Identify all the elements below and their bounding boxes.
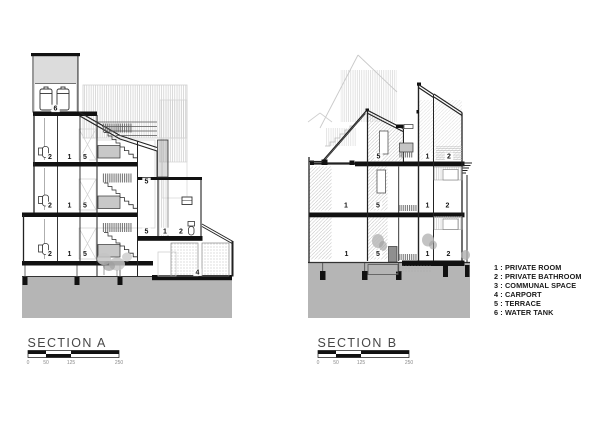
scalebar-a-tick-0: 0 xyxy=(27,360,30,366)
legend-item-water-tank: 6 : WATER TANK xyxy=(494,309,582,318)
toilet-icon xyxy=(188,222,195,236)
room-number-label: 1 xyxy=(345,251,349,258)
room-number-label: 1 xyxy=(68,203,72,210)
room-number-label: 2 xyxy=(48,203,52,210)
section-a-title: SECTION A xyxy=(28,336,107,350)
section-a-background xyxy=(79,85,187,259)
window-icon xyxy=(443,170,458,181)
room-number-label: 5 xyxy=(83,203,87,210)
room-number-label: 2 xyxy=(447,251,451,258)
scalebar-b-tick-125: 125 xyxy=(357,360,366,366)
terrace-deck xyxy=(400,143,414,152)
section-b-title: SECTION B xyxy=(318,336,398,350)
room-number-label: 5 xyxy=(83,251,87,258)
section-a-drawing: 621521521555124 xyxy=(22,53,233,318)
sections-drawing: 621521521555124 xyxy=(0,0,600,424)
room-number-label: 2 xyxy=(179,229,183,236)
door-panel xyxy=(389,247,398,263)
room-number-label: 2 xyxy=(447,154,451,161)
scalebar-a-tick-125: 125 xyxy=(67,360,76,366)
room-number-label: 5 xyxy=(377,154,381,161)
section-b-ground xyxy=(308,261,470,319)
section-b-drawing: 51215121512 xyxy=(308,55,472,318)
room-number-label: 4 xyxy=(196,270,200,277)
scalebar-b-tick-50: 50 xyxy=(333,360,339,366)
railing xyxy=(400,254,418,260)
room-number-label: 1 xyxy=(68,251,72,258)
scalebar-a: 0 50 125 250 xyxy=(27,351,124,367)
room-number-label: 1 xyxy=(426,154,430,161)
room-number-label: 1 xyxy=(344,203,348,210)
room-number-label: 1 xyxy=(426,251,430,258)
drawing-sheet: 621521521555124 xyxy=(0,0,600,424)
room-number-label: 5 xyxy=(145,179,149,186)
room-number-label: 2 xyxy=(48,154,52,161)
paving xyxy=(399,265,431,273)
room-number-label: 1 xyxy=(163,229,167,236)
scalebar-b-tick-0: 0 xyxy=(317,360,320,366)
scalebar-b: 0 50 125 250 xyxy=(317,351,414,367)
legend: 1 : PRIVATE ROOM 2 : PRIVATE BATHROOM 3 … xyxy=(494,264,582,317)
room-number-label: 1 xyxy=(68,154,72,161)
room-number-label: 1 xyxy=(426,203,430,210)
railing xyxy=(400,205,418,211)
water-tank-tower xyxy=(31,53,80,112)
room-number-label: 5 xyxy=(376,203,380,210)
scalebar-a-tick-50: 50 xyxy=(43,360,49,366)
room-number-label: 6 xyxy=(54,106,58,113)
window-icon xyxy=(182,197,192,205)
room-number-label: 5 xyxy=(376,251,380,258)
scalebar-a-tick-250: 250 xyxy=(115,360,124,366)
window-icon xyxy=(443,219,458,230)
room-number-label: 2 xyxy=(446,203,450,210)
room-number-label: 5 xyxy=(145,229,149,236)
scalebar-b-tick-250: 250 xyxy=(405,360,414,366)
room-number-label: 2 xyxy=(48,251,52,258)
staircase xyxy=(98,124,138,261)
room-number-label: 5 xyxy=(83,154,87,161)
entry-steps xyxy=(368,265,398,275)
